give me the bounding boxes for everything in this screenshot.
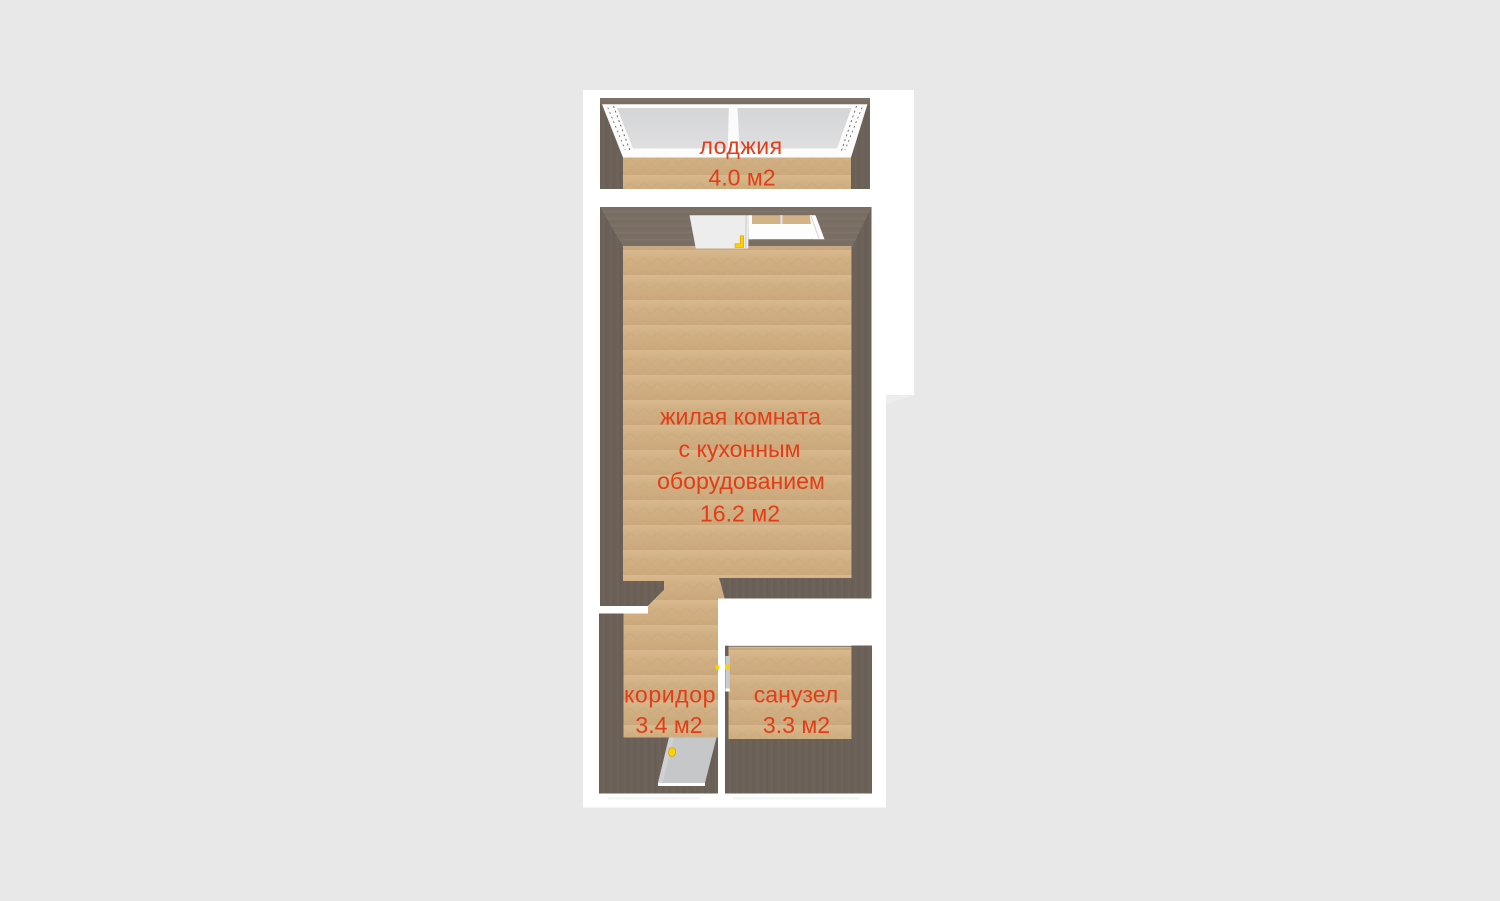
svg-text:3.4 м2: 3.4 м2	[635, 712, 702, 738]
svg-text:санузел: санузел	[754, 681, 839, 707]
svg-text:оборудованием: оборудованием	[657, 468, 825, 494]
svg-text:коридор: коридор	[624, 681, 716, 707]
svg-text:жилая комната: жилая комната	[660, 404, 821, 430]
svg-text:с кухонным: с кухонным	[679, 436, 801, 462]
svg-text:4.0 м2: 4.0 м2	[708, 164, 775, 190]
svg-text:3.3 м2: 3.3 м2	[763, 712, 830, 738]
svg-text:лоджия: лоджия	[699, 133, 782, 159]
svg-text:16.2 м2: 16.2 м2	[700, 501, 780, 527]
